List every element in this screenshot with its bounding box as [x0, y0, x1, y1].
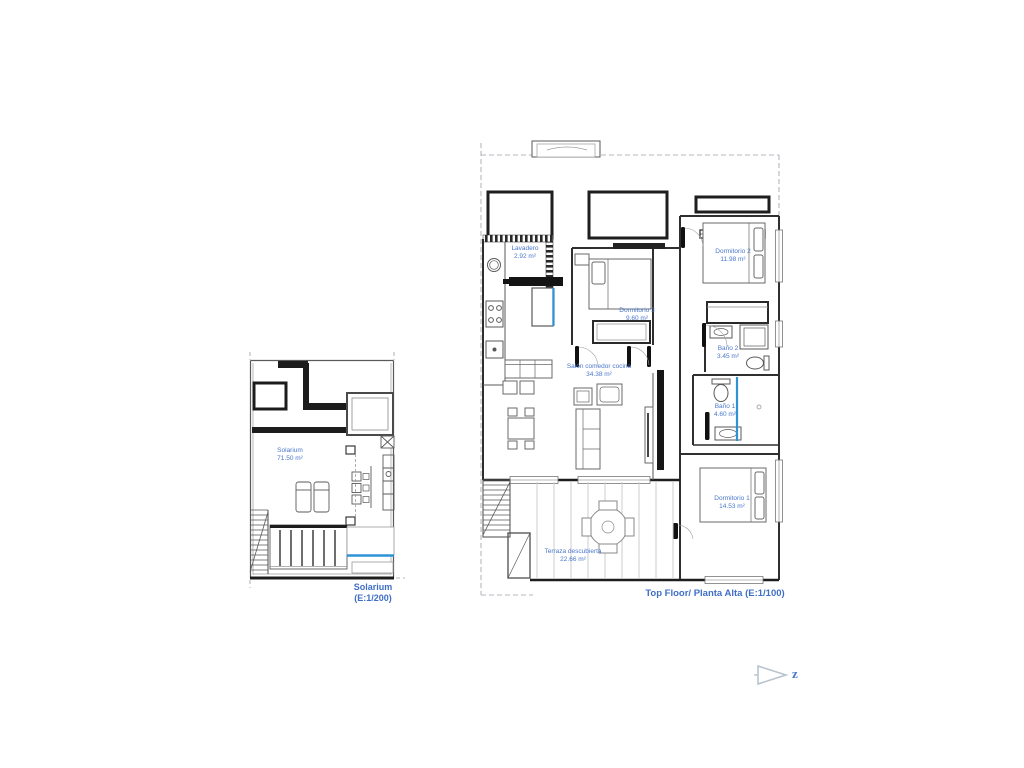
room-label-dormitorio-1: Dormitorio 1 14.53 m²	[714, 495, 749, 511]
north-arrow-icon	[752, 662, 792, 690]
room-label-bano-1: Baño 1 4.60 m²	[714, 403, 736, 419]
solarium-plan-title: Solarium (E:1/200)	[354, 582, 393, 605]
solarium-plan-drawing	[240, 350, 410, 650]
room-label-bano-2: Baño 2 3.45 m²	[717, 345, 739, 361]
room-label-dormitorio-3: Dormitorio 3 9.60 m²	[619, 307, 654, 323]
room-label-terraza: Terraza descubierta 22.66 m²	[544, 548, 601, 564]
room-area: 3.45 m²	[717, 353, 739, 361]
top-floor-plan-title: Top Floor/ Planta Alta (E:1/100)	[645, 588, 784, 600]
room-name: Dormitorio 1	[714, 495, 749, 503]
room-area: 9.60 m²	[619, 315, 654, 323]
room-label-dormitorio-2: Dormitorio 2 11.98 m²	[715, 248, 750, 264]
plan-title-line1: Solarium	[354, 582, 393, 593]
north-label: z	[792, 666, 798, 682]
room-name: Salón comedor cocina	[567, 363, 631, 371]
north-indicator: z	[752, 662, 826, 690]
solarium-plan: Solarium 71.50 m² Solarium (E:1/200)	[240, 350, 410, 650]
room-name: Baño 1	[714, 403, 736, 411]
room-area: 22.66 m²	[544, 556, 601, 564]
floor-plan-sheet: Solarium 71.50 m² Solarium (E:1/200)	[0, 0, 1024, 768]
room-name: Dormitorio 2	[715, 248, 750, 256]
room-area: 14.53 m²	[714, 503, 749, 511]
room-area: 71.50 m²	[277, 455, 303, 463]
room-area: 11.98 m²	[715, 256, 750, 264]
plan-title-line2: (E:1/200)	[354, 593, 393, 604]
room-name: Terraza descubierta	[544, 548, 601, 556]
room-area: 4.60 m²	[714, 411, 736, 419]
room-name: Lavadero	[511, 245, 538, 253]
room-label-salon: Salón comedor cocina 34.38 m²	[567, 363, 631, 379]
room-name: Dormitorio 3	[619, 307, 654, 315]
room-area: 2.92 m²	[511, 253, 538, 261]
room-label-lavadero: Lavadero 2.92 m²	[511, 245, 538, 261]
room-name: Baño 2	[717, 345, 739, 353]
room-name: Solarium	[277, 447, 303, 455]
room-label-solarium: Solarium 71.50 m²	[277, 447, 303, 463]
room-area: 34.38 m²	[567, 371, 631, 379]
top-floor-plan: Lavadero 2.92 m² Dormitorio 3 9.60 m² Do…	[475, 135, 785, 615]
